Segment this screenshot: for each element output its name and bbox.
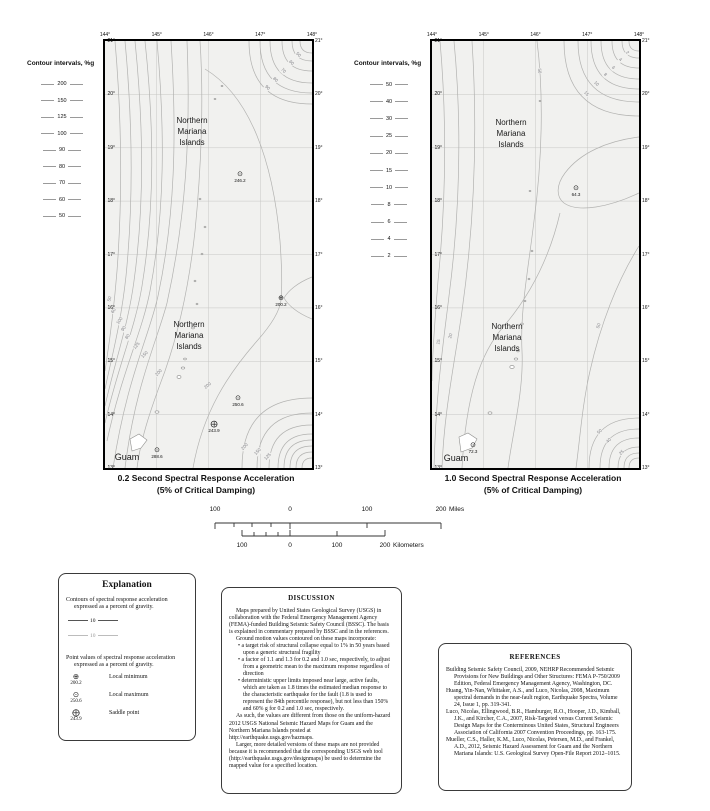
discussion-paragraph-4: Larger, more detailed versions of these … (229, 742, 394, 770)
contour-line-sample (371, 239, 384, 240)
map-title-02s: 0.2 Second Spectral Response Acceleratio… (66, 473, 346, 497)
legend-value: 30 (386, 116, 392, 122)
contour-line-sample (371, 204, 384, 205)
latitude-labels-right: 21°20°19°18°17°16°15°14°13° (315, 41, 328, 468)
contour-line-sample (371, 222, 384, 223)
lat-label: 14° (642, 412, 655, 418)
legend-value: 10 (386, 185, 392, 191)
lon-label: 145° (152, 32, 162, 38)
contour-line-sample (70, 117, 83, 118)
map-title-line2: (5% of Critical Damping) (393, 485, 673, 497)
point-symbol-icon: ⨁ (67, 709, 85, 717)
point-marker: ⊙ 64.3 (563, 185, 589, 197)
region-label: Guam (444, 452, 469, 464)
lat-label: 18° (642, 198, 655, 204)
contour-line-sample (41, 117, 54, 118)
lat-label: 21° (642, 38, 655, 44)
lat-label: 15° (429, 358, 442, 364)
contour-line-sample (68, 199, 81, 200)
lon-label: 145° (479, 32, 489, 38)
contour-line-sample (98, 620, 118, 621)
lat-label: 19° (429, 145, 442, 151)
explanation-box: Explanation Contours of spectral respons… (58, 573, 196, 741)
legend-row: 2 (354, 248, 424, 265)
contour-line-sample (68, 620, 88, 621)
lat-label: 13° (642, 465, 655, 471)
map-10s: 144°145°146°147°148° 21°20°19°18°17°16°1… (430, 39, 641, 470)
point-symbol-icon: ⨁ (201, 421, 227, 428)
reference-entry: Huang, Yin-Nan, Whittaker, A.S., and Luc… (446, 688, 624, 709)
lat-label: 14° (102, 412, 115, 418)
legend-row: 30 (354, 110, 424, 127)
legend-value: 6 (387, 219, 390, 225)
contour-legend-02s: Contour intervals, %g 200 150 125 100 (27, 60, 97, 225)
lat-label: 16° (642, 305, 655, 311)
point-symbol-icon: ⊙ (225, 395, 251, 402)
lat-label: 17° (429, 252, 442, 258)
lat-label: 17° (642, 252, 655, 258)
discussion-bullet: a target risk of structural collapse equ… (237, 643, 394, 657)
contour-samples: 10 10 (66, 613, 188, 643)
legend-value: 20 (386, 150, 392, 156)
legend-row: 100 (27, 126, 97, 143)
discussion-title: DISCUSSION (229, 594, 394, 603)
contour-line-sample (395, 136, 408, 137)
contour-line-sample (43, 216, 56, 217)
point-symbol-value: 243.9 (67, 717, 85, 722)
legend-value: 2 (387, 253, 390, 259)
lon-label: 146° (203, 32, 213, 38)
reference-entry: Luco, Nicolas, Ellingwood, B.R., Hamburg… (446, 709, 624, 737)
contour-sample-row: 10 (68, 628, 188, 643)
contour-line-sample (370, 118, 383, 119)
contour-line-sample (70, 84, 83, 85)
scale-bar-graphic (190, 503, 530, 563)
lon-label: 147° (582, 32, 592, 38)
point-value: 200.2 (268, 302, 294, 307)
lat-label: 13° (429, 465, 442, 471)
discussion-paragraph-2: Ground motion values contoured on these … (229, 636, 394, 643)
legend-row: 150 (27, 93, 97, 110)
contour-svg (432, 41, 639, 468)
reference-entries: Building Seismic Safety Council, 2009, N… (446, 667, 624, 757)
symbol-key-label: Saddle point (109, 709, 139, 717)
lat-label: 19° (642, 145, 655, 151)
symbol-key-label: Local maximum (109, 691, 149, 699)
lat-label: 14° (429, 412, 442, 418)
map-title-line1: 0.2 Second Spectral Response Acceleratio… (66, 473, 346, 485)
scale-tick-label: 100 (237, 542, 248, 549)
legend-row: 4 (354, 231, 424, 248)
lat-label: 14° (315, 412, 328, 418)
legend-row: 6 (354, 214, 424, 231)
contours-description: Contours of spectral response accelerati… (66, 597, 188, 611)
symbol-key-cell: ⊕ 200.2 (67, 673, 85, 686)
latitude-labels-right: 21°20°19°18°17°16°15°14°13° (642, 41, 655, 468)
contour-line-sample (395, 84, 408, 85)
contour-line-sample (41, 133, 54, 134)
legend-value: 125 (57, 114, 66, 120)
map-title-line2: (5% of Critical Damping) (66, 485, 346, 497)
lat-label: 21° (429, 38, 442, 44)
legend-value: 25 (386, 133, 392, 139)
contour-line-sample (395, 153, 408, 154)
lat-label: 15° (315, 358, 328, 364)
point-value: 246.2 (227, 178, 253, 183)
lat-label: 16° (315, 305, 328, 311)
point-marker: ⊙ 288.6 (144, 447, 170, 459)
legend-value: 70 (59, 180, 65, 186)
contour-line-sample (370, 153, 383, 154)
legend-title: Contour intervals, %g (354, 60, 424, 67)
legend-row: 50 (27, 208, 97, 225)
contour-line-sample (370, 187, 383, 188)
contour-line-sample (395, 170, 408, 171)
legend-value: 15 (386, 168, 392, 174)
contour-line-sample (371, 256, 384, 257)
legend-row: 125 (27, 109, 97, 126)
symbol-key-row: ⊕ 200.2 Local minimum (67, 673, 188, 686)
point-symbol-icon: ⊙ (227, 171, 253, 178)
contour-line-sample (43, 183, 56, 184)
lat-label: 15° (102, 358, 115, 364)
legend-row: 70 (27, 175, 97, 192)
lat-label: 13° (315, 465, 328, 471)
contour-line-sample (370, 84, 383, 85)
legend-row: 80 (27, 159, 97, 176)
legend-value: 80 (59, 164, 65, 170)
discussion-paragraph-1: Maps prepared by United States Geologica… (229, 608, 394, 636)
lat-label: 13° (102, 465, 115, 471)
point-value: 250.6 (225, 402, 251, 407)
lat-label: 18° (315, 198, 328, 204)
kilometers-unit-label: Kilometers (393, 542, 424, 549)
scale-bars: 1000100200 Miles 1000100200 Kilometers (190, 503, 530, 563)
legend-value: 40 (386, 99, 392, 105)
contour-value-label: 50 (536, 68, 541, 74)
scale-tick-label: 200 (380, 542, 391, 549)
contour-sample-value: 10 (90, 633, 96, 639)
contour-line-sample (68, 150, 81, 151)
point-marker: ⊙ 246.2 (227, 171, 253, 183)
contour-line-sample (43, 199, 56, 200)
legend-value: 8 (387, 202, 390, 208)
legend-value: 200 (57, 81, 66, 87)
lat-label: 21° (102, 38, 115, 44)
contour-line-sample (370, 101, 383, 102)
lat-label: 21° (315, 38, 328, 44)
point-value: 64.3 (563, 192, 589, 197)
symbol-key-label: Local minimum (109, 673, 148, 681)
legend-rows: 200 150 125 100 90 80 (27, 76, 97, 225)
contour-line-sample (68, 166, 81, 167)
contour-line-sample (68, 635, 88, 636)
lon-label: 146° (530, 32, 540, 38)
longitude-labels: 144°145°146°147°148° (432, 32, 639, 40)
contour-line-sample (41, 100, 54, 101)
contour-sample-row: 10 (68, 613, 188, 628)
point-symbol-icon: ⊕ (67, 673, 85, 681)
contour-line-sample (370, 136, 383, 137)
point-symbol-icon: ⊙ (460, 442, 486, 449)
kilometers-scale-labels: 1000100200 (190, 542, 530, 551)
contour-line-sample (98, 635, 118, 636)
legend-row: 90 (27, 142, 97, 159)
legend-row: 20 (354, 145, 424, 162)
map-title-10s: 1.0 Second Spectral Response Acceleratio… (393, 473, 673, 497)
lat-label: 19° (102, 145, 115, 151)
point-marker: ⨁ 243.9 (201, 421, 227, 433)
point-value: 288.6 (144, 454, 170, 459)
map-sheet: Contour intervals, %g 200 150 125 100 (0, 0, 710, 811)
symbol-key-cell: ⊙ 250.6 (67, 691, 85, 704)
references-title: REFERENCES (446, 653, 624, 661)
contour-line-sample (43, 166, 56, 167)
contour-line-sample (394, 204, 407, 205)
lat-label: 16° (429, 305, 442, 311)
reference-entry: Mueller, C.S., Haller, K.M., Luco, Nicol… (446, 737, 624, 758)
contour-line-sample (394, 222, 407, 223)
contour-line-sample (395, 118, 408, 119)
lat-label: 18° (429, 198, 442, 204)
contour-line-sample (70, 100, 83, 101)
region-label: Northern Mariana Islands (173, 320, 204, 352)
legend-row: 25 (354, 128, 424, 145)
lat-label: 17° (315, 252, 328, 258)
lat-label: 20° (642, 91, 655, 97)
discussion-box: DISCUSSION Maps prepared by United State… (221, 587, 402, 794)
symbol-key-cell: ⨁ 243.9 (67, 709, 85, 722)
legend-row: 40 (354, 93, 424, 110)
map-title-line1: 1.0 Second Spectral Response Acceleratio… (393, 473, 673, 485)
legend-value: 100 (57, 131, 66, 137)
point-symbol-value: 250.6 (67, 699, 85, 704)
contour-line-sample (68, 183, 81, 184)
legend-value: 150 (57, 98, 66, 104)
point-symbol-icon: ⊙ (67, 691, 85, 699)
lat-label: 15° (642, 358, 655, 364)
legend-title: Contour intervals, %g (27, 60, 97, 67)
contour-legend-10s: Contour intervals, %g 50 40 30 25 (354, 60, 424, 265)
point-marker: ⊕ 200.2 (268, 295, 294, 307)
legend-row: 200 (27, 76, 97, 93)
contour-line-sample (395, 187, 408, 188)
legend-rows: 50 40 30 25 20 15 (354, 76, 424, 265)
contour-line-sample (70, 133, 83, 134)
lat-label: 20° (429, 91, 442, 97)
point-marker: ⊙ 250.6 (225, 395, 251, 407)
legend-row: 15 (354, 162, 424, 179)
point-symbol-icon: ⊙ (144, 447, 170, 454)
lon-label: 147° (255, 32, 265, 38)
point-symbol-value: 200.2 (67, 681, 85, 686)
point-symbol-icon: ⊙ (563, 185, 589, 192)
contour-line-sample (43, 150, 56, 151)
region-label: Northern Mariana Islands (495, 118, 526, 150)
legend-value: 50 (386, 82, 392, 88)
point-symbol-key: ⊕ 200.2 Local minimum ⊙ 250.6 Local maxi… (66, 673, 188, 722)
contour-line-sample (68, 216, 81, 217)
lat-label: 18° (102, 198, 115, 204)
scale-tick-label: 100 (332, 542, 343, 549)
legend-row: 60 (27, 192, 97, 209)
contour-line-sample (41, 84, 54, 85)
symbol-key-row: ⊙ 250.6 Local maximum (67, 691, 188, 704)
legend-value: 50 (59, 213, 65, 219)
legend-value: 60 (59, 197, 65, 203)
map-02s: 144°145°146°147°148° 21°20°19°18°17°16°1… (103, 39, 314, 470)
legend-row: 50 (354, 76, 424, 93)
lat-label: 19° (315, 145, 328, 151)
legend-value: 90 (59, 147, 65, 153)
contour-line-sample (395, 101, 408, 102)
references-box: REFERENCES Building Seismic Safety Counc… (438, 643, 632, 791)
contour-line-sample (370, 170, 383, 171)
contour-sample-value: 10 (90, 618, 96, 624)
region-label: Northern Mariana Islands (176, 116, 207, 148)
point-value: 243.9 (201, 428, 227, 433)
reference-entry: Building Seismic Safety Council, 2009, N… (446, 667, 624, 688)
region-label: Northern Mariana Islands (491, 322, 522, 354)
contour-svg (105, 41, 312, 468)
scale-tick-label: 0 (288, 542, 292, 549)
point-symbol-icon: ⊕ (268, 295, 294, 302)
longitude-labels: 144°145°146°147°148° (105, 32, 312, 40)
contour-line-sample (394, 239, 407, 240)
contour-line-sample (394, 256, 407, 257)
latitude-labels-left: 21°20°19°18°17°16°15°14°13° (416, 41, 429, 468)
discussion-bullets: a target risk of structural collapse equ… (229, 643, 394, 714)
region-label: Guam (115, 451, 140, 463)
discussion-bullet: a factor of 1.1 and 1.3 for 0.2 and 1.0 … (237, 657, 394, 678)
discussion-bullet: deterministic upper limits imposed near … (237, 678, 394, 713)
legend-row: 8 (354, 196, 424, 213)
lat-label: 20° (102, 91, 115, 97)
discussion-paragraph-3: As such, the values are different from t… (229, 713, 394, 741)
latitude-labels-left: 21°20°19°18°17°16°15°14°13° (89, 41, 102, 468)
explanation-title: Explanation (66, 580, 188, 591)
lat-label: 20° (315, 91, 328, 97)
lat-label: 17° (102, 252, 115, 258)
points-description: Point values of spectral response accele… (66, 655, 188, 669)
legend-value: 4 (387, 236, 390, 242)
symbol-key-row: ⨁ 243.9 Saddle point (67, 709, 188, 722)
legend-row: 10 (354, 179, 424, 196)
